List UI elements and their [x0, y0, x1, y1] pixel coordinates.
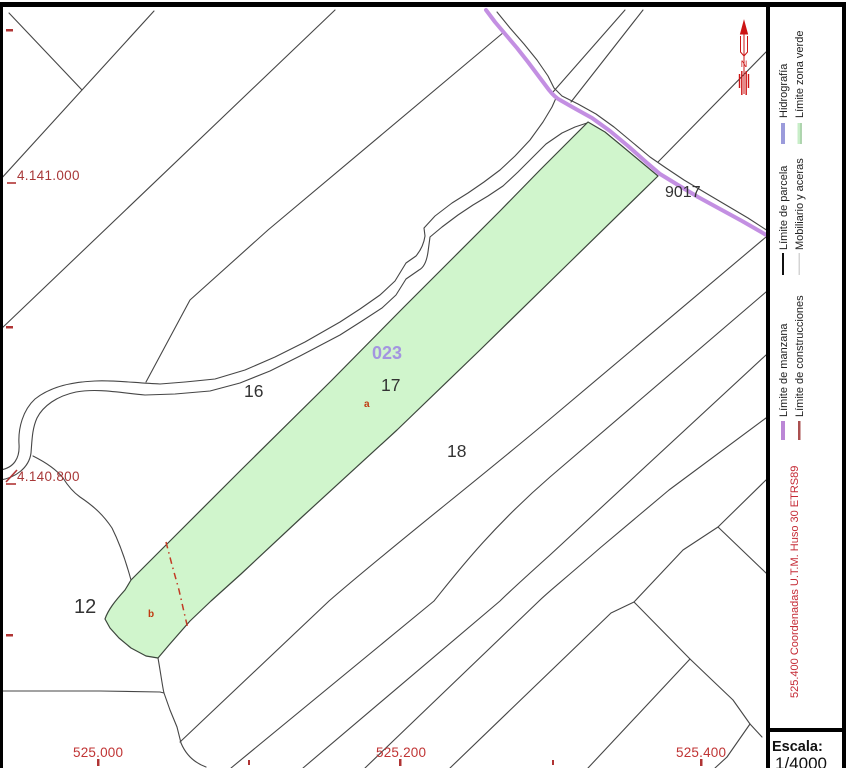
svg-text:4.141.000: 4.141.000 — [17, 168, 80, 183]
svg-text:525.400: 525.400 — [676, 745, 726, 760]
svg-text:Límite de manzana: Límite de manzana — [778, 323, 790, 417]
svg-text:Hidrografía: Hidrografía — [778, 63, 790, 118]
svg-text:Mobiliario y aceras: Mobiliario y aceras — [794, 158, 806, 250]
svg-text:525.400 Coordenadas U.T.M. Hus: 525.400 Coordenadas U.T.M. Huso 30 ETRS8… — [789, 466, 801, 698]
svg-text:9017: 9017 — [665, 184, 701, 201]
svg-text:12: 12 — [74, 596, 96, 618]
svg-text:525.000: 525.000 — [73, 745, 123, 760]
svg-text:a: a — [364, 399, 370, 410]
svg-text:023: 023 — [372, 343, 402, 363]
svg-text:525.200: 525.200 — [376, 745, 426, 760]
svg-text:18: 18 — [447, 441, 466, 461]
svg-text:b: b — [148, 609, 154, 620]
svg-text:17: 17 — [381, 375, 400, 395]
svg-text:N: N — [741, 59, 748, 69]
svg-text:1/4000: 1/4000 — [775, 754, 827, 768]
svg-text:Límite de parcela: Límite de parcela — [778, 165, 790, 250]
svg-text:16: 16 — [244, 381, 263, 401]
svg-text:4.140.800: 4.140.800 — [17, 469, 80, 484]
svg-text:Límite zona verde: Límite zona verde — [794, 31, 806, 118]
svg-text:Escala:: Escala: — [772, 739, 823, 755]
svg-text:Límite de construcciones: Límite de construcciones — [794, 295, 806, 417]
